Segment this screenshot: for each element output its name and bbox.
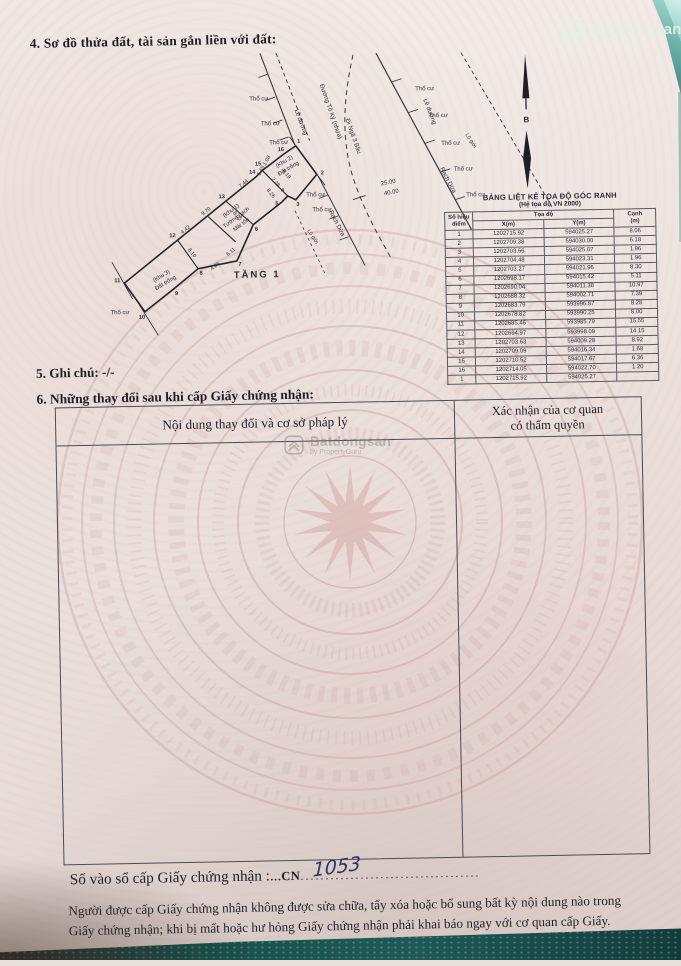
diagram-text: 1 xyxy=(297,139,300,145)
diagram-text: Thổ cư xyxy=(441,140,460,147)
diagram-text: 12 xyxy=(169,233,175,239)
watermark-brand: Batdongsan xyxy=(592,21,681,38)
diagram-text: Đường Tô Ký (nhựa) xyxy=(318,83,343,140)
diagram-text: 40.00 xyxy=(384,188,401,197)
shadow-bottom-left xyxy=(0,850,280,960)
diagram-text: 8 xyxy=(200,271,203,277)
diagram-text: Lộ giới xyxy=(464,133,478,150)
diagram-text: Lề đường xyxy=(421,98,437,126)
watermark-byline: by PropertyGuru xyxy=(310,449,391,456)
changes-col2-header: Xác nhận của cơ quan có thẩm quyền xyxy=(454,397,642,438)
diagram-text: B xyxy=(523,115,529,124)
diagram-text: 16 xyxy=(278,147,284,153)
coord-table: Số hiệuđiểm Tọa độ Cạnh(m) X(m) Y(m) 112… xyxy=(444,208,659,386)
changes-table: Nội dung thay đổi và cơ sở pháp lý Xác n… xyxy=(55,396,651,865)
diagram-text: 7.44 xyxy=(238,178,250,189)
diagram-text: 9 xyxy=(175,291,178,297)
diagram-text: 14 xyxy=(249,170,256,176)
changes-col1-header: Nội dung thay đổi và cơ sở pháp lý xyxy=(56,401,455,446)
watermark-byline: by PropertyGuru xyxy=(592,38,681,45)
coord-table-body: 11202715.92594025.278.0621202709.3859403… xyxy=(445,227,659,385)
diagram-text: 13 xyxy=(219,194,225,200)
paper-content: 4. Sơ đồ thửa đất, tài sản gắn liền với … xyxy=(0,0,681,966)
diagram-text: Thổ cư xyxy=(429,112,448,119)
batdongsan-logo-icon xyxy=(560,20,586,46)
diagram-text: TẦNG 1 xyxy=(234,269,281,281)
diagram-text: Thổ cư xyxy=(312,206,331,213)
diagram-text: Thổ cư xyxy=(415,85,434,92)
diagram-text: 5 xyxy=(275,201,278,207)
diagram-text: 6 xyxy=(255,227,258,233)
diagram-text: 10 xyxy=(139,315,145,321)
changes-table-divider xyxy=(454,401,464,857)
diagram-text: 2 xyxy=(321,170,324,176)
diagram-text: 7 xyxy=(238,262,241,268)
diagram-text: Thổ cư xyxy=(269,139,288,146)
section4-title: 4. Sơ đồ thửa đất, tài sản gắn liền với … xyxy=(30,31,277,52)
diagram-text: Lề đường xyxy=(293,108,309,136)
diagram-text: Thổ cư xyxy=(110,309,129,316)
diagram-text: 6.11 xyxy=(225,247,237,258)
registry-prefix: CN xyxy=(281,869,300,883)
diagram-text: 1.08 xyxy=(262,155,272,167)
diagram-text: 9.70 xyxy=(201,206,213,217)
diagram-text: Thổ cư xyxy=(261,120,280,127)
diagram-text: 8.26 xyxy=(265,188,276,200)
diagram-text: Lộ giới xyxy=(305,229,319,246)
diagram-text: Thổ cư xyxy=(249,95,268,102)
photo: 4. Sơ đồ thửa đất, tài sản gắn liền với … xyxy=(0,0,681,960)
watermark-brand: Batdongsan xyxy=(310,434,391,449)
diagram-text: 4.06 xyxy=(210,261,222,272)
diagram-text: 3 xyxy=(296,202,299,208)
diagram-text: Thổ cư xyxy=(306,191,325,198)
diagram-text: 11 xyxy=(114,278,120,284)
batdongsan-logo-icon xyxy=(284,435,304,455)
diagram-text: Đi Ngã 3 Bầu xyxy=(344,118,363,156)
diagram-text: 8.10 xyxy=(186,247,197,259)
section5-note: 5. Ghi chú: -/- xyxy=(36,364,115,382)
watermark-center: Batdongsan by PropertyGuru xyxy=(284,434,391,456)
watermark-top-right: Batdongsan by PropertyGuru xyxy=(560,20,681,46)
diagram-text: 25.00 xyxy=(380,179,397,188)
coordinate-table: BẢNG LIỆT KÊ TỌA ĐỘ GÓC RANH (Hệ tọa độ … xyxy=(444,190,660,386)
diagram-text: Thổ cư xyxy=(454,165,473,172)
